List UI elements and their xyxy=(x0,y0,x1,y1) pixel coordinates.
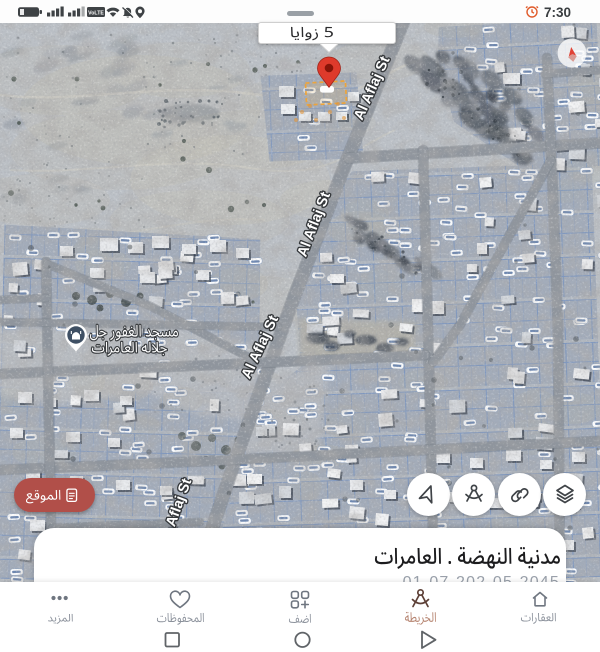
svg-text:VoLTE: VoLTE xyxy=(88,10,104,16)
svg-text:7:30: 7:30 xyxy=(544,5,571,20)
